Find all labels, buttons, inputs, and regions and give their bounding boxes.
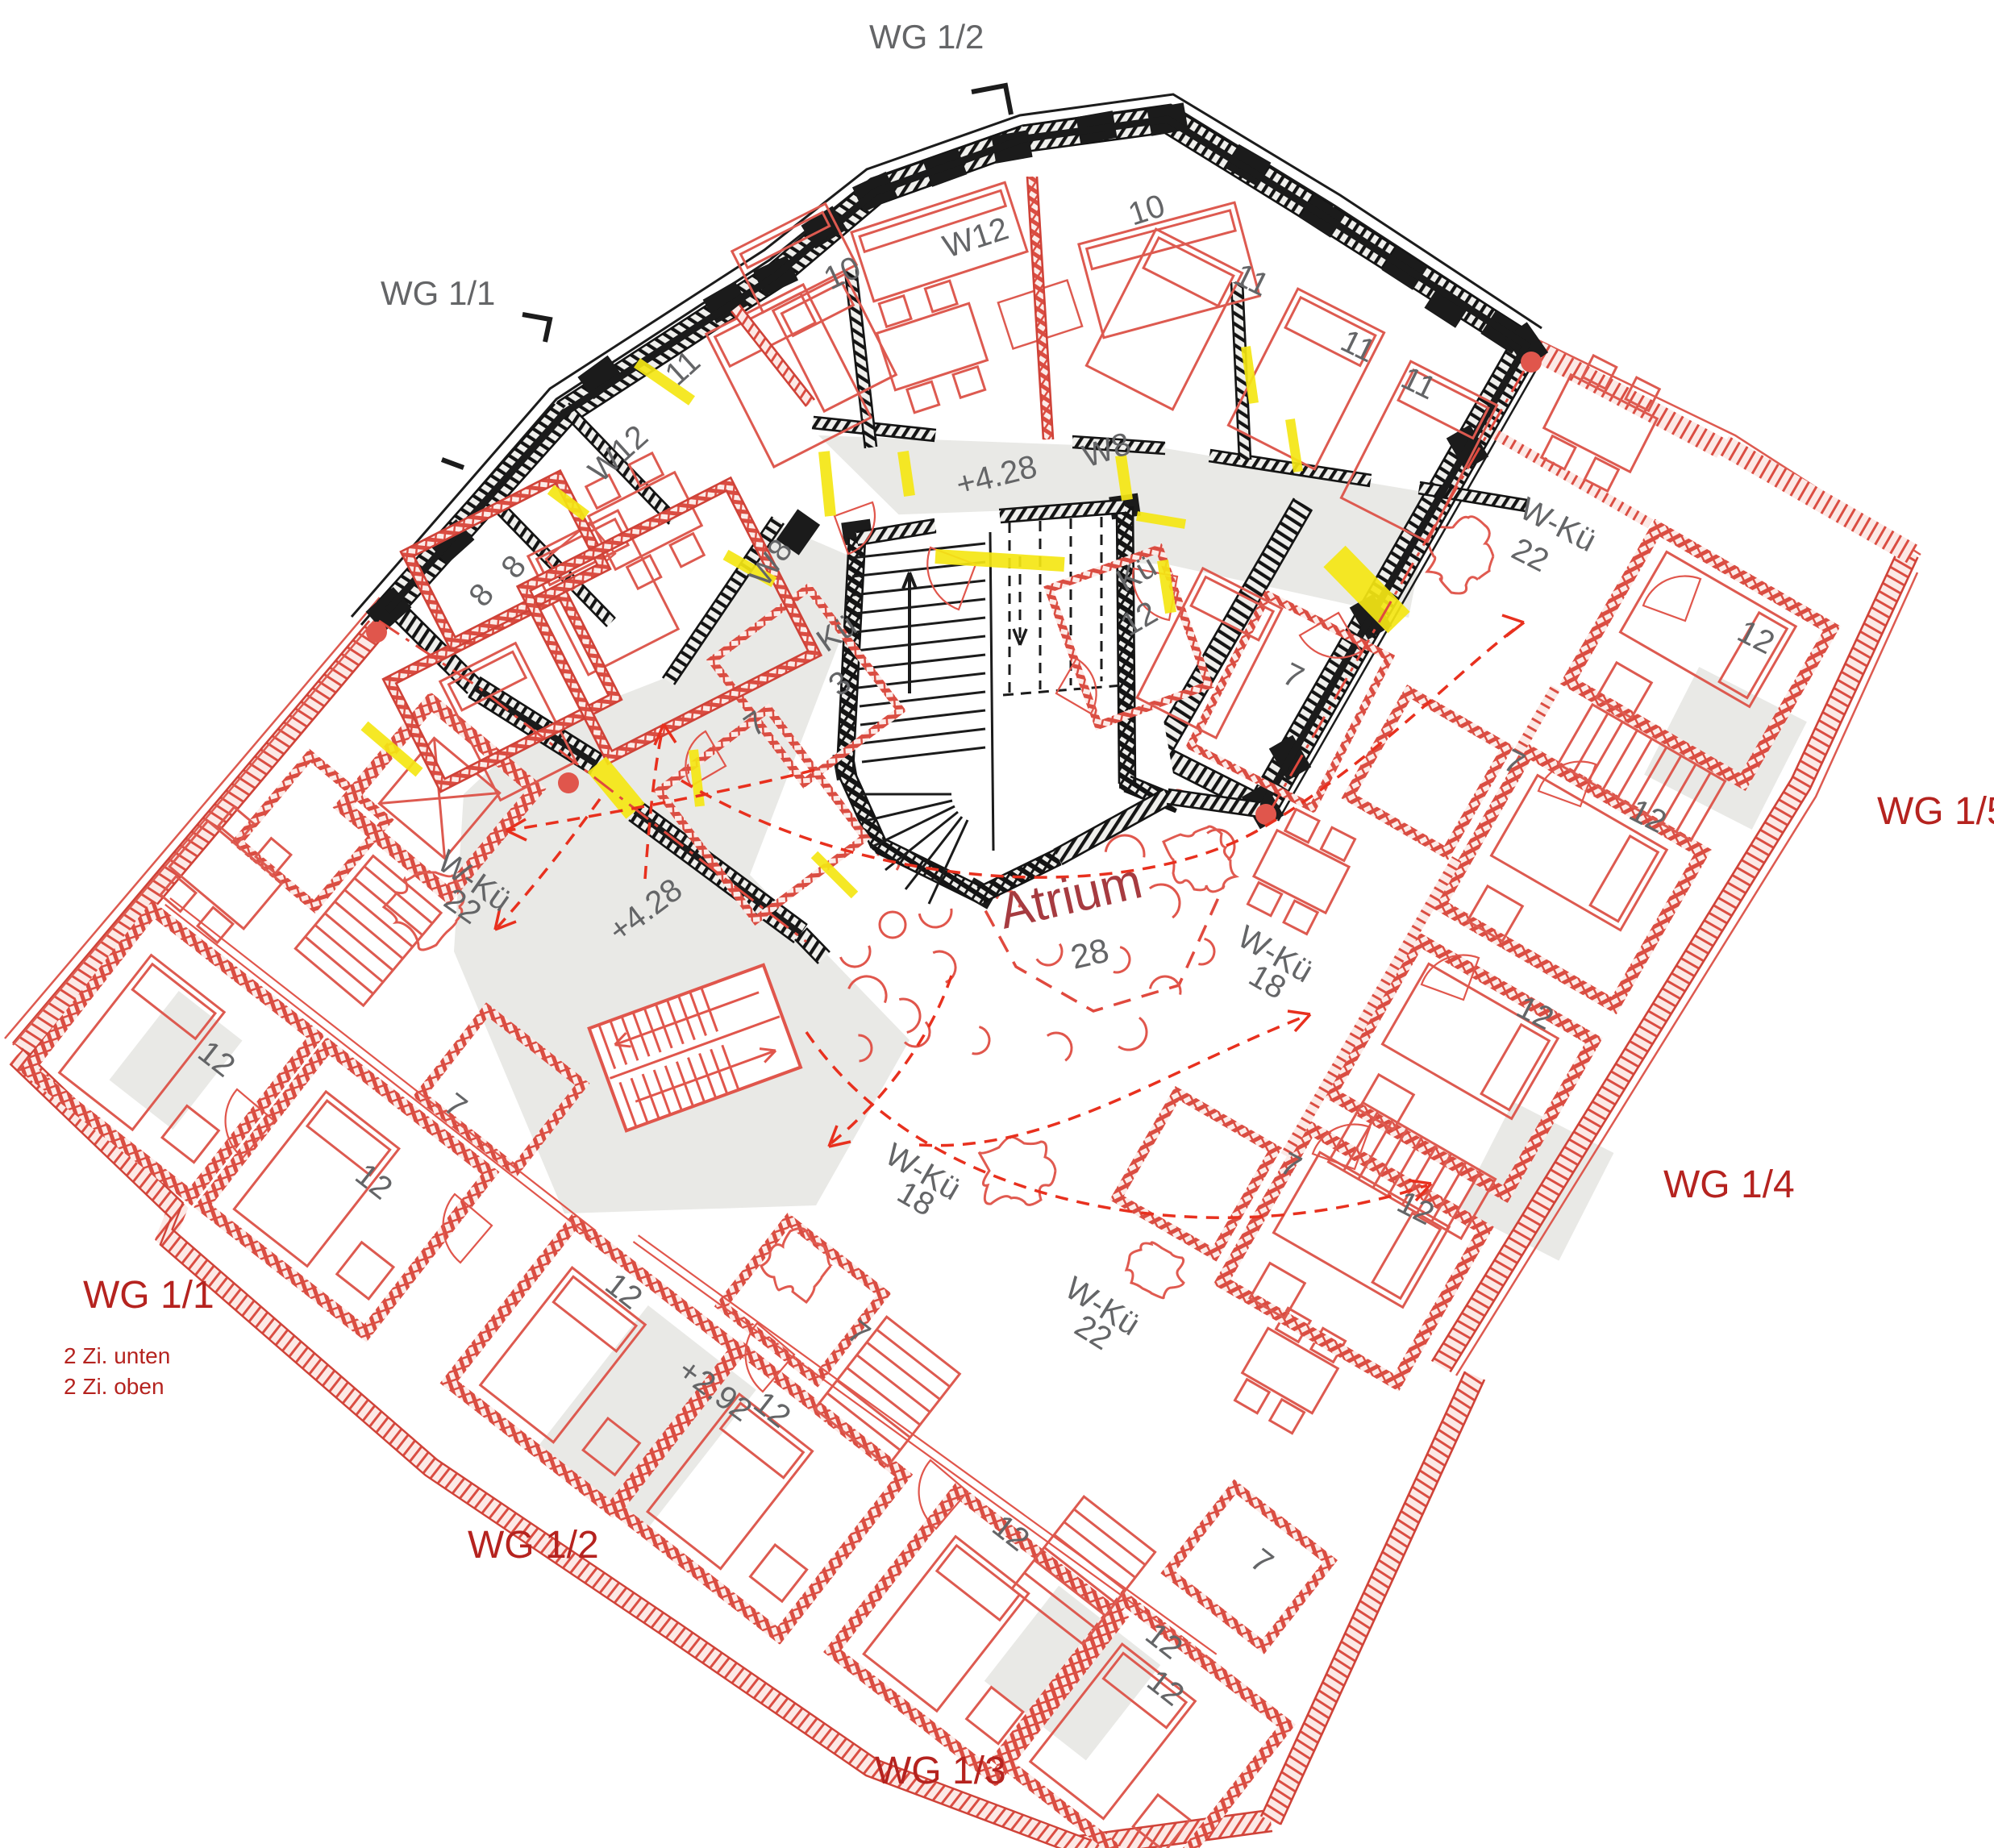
svg-text:2 Zi. unten: 2 Zi. unten	[64, 1343, 170, 1368]
svg-text:2 Zi. oben: 2 Zi. oben	[64, 1374, 164, 1399]
svg-text:WG 1/1: WG 1/1	[83, 1274, 214, 1317]
svg-text:WG 1/3: WG 1/3	[875, 1750, 1006, 1792]
svg-text:WG 1/5: WG 1/5	[1877, 790, 1994, 833]
svg-text:WG 1/2: WG 1/2	[869, 18, 984, 56]
svg-text:WG 1/4: WG 1/4	[1663, 1163, 1795, 1206]
svg-text:WG 1/2: WG 1/2	[468, 1524, 599, 1567]
svg-text:WG 1/1: WG 1/1	[381, 274, 495, 312]
